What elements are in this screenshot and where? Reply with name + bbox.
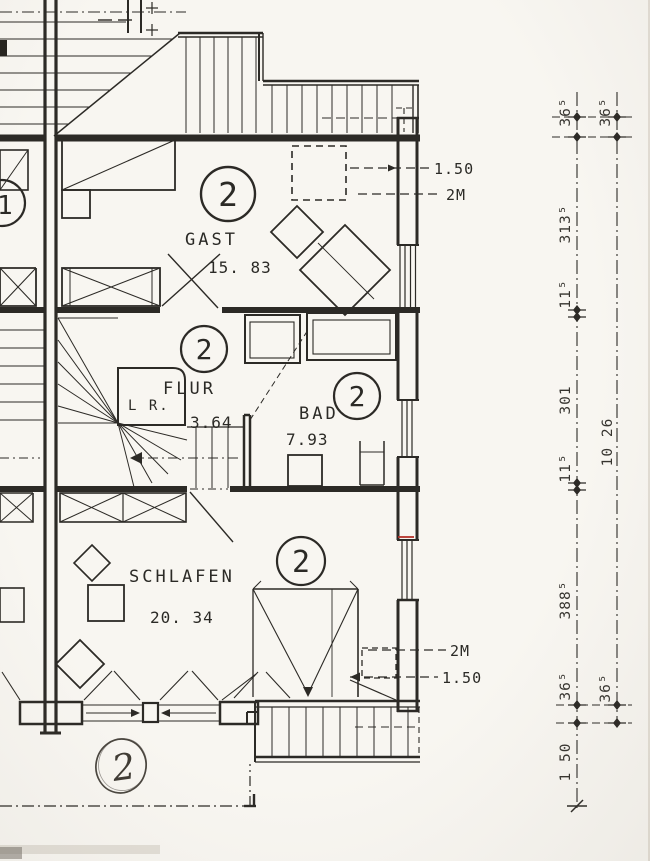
staircase: L R. xyxy=(58,318,243,488)
gast-diamond-small xyxy=(271,206,323,258)
void-label: L R. xyxy=(128,398,170,414)
roof-terrace-top xyxy=(0,0,419,136)
adjacent-unit-number: 1 xyxy=(0,191,13,221)
dim-right-1: 10 26 xyxy=(600,418,616,467)
flur-area-label: 3.64 xyxy=(190,413,233,432)
roof-valley-line xyxy=(54,33,180,136)
height-line-2m-top: 2M xyxy=(446,186,466,204)
schlafen-door-swing xyxy=(190,492,233,542)
bad-room-label: BAD xyxy=(299,404,339,424)
room-gast: 1.50 2M 2 GAST 15. 83 xyxy=(62,140,474,315)
dim-left-6: 36⁵ xyxy=(558,671,574,700)
schlafen-area-label: 20. 34 xyxy=(150,608,214,627)
gast-side-table xyxy=(62,190,90,218)
floorplan-drawing: 1 1. xyxy=(0,0,650,861)
bad-wc xyxy=(288,455,322,486)
gast-room-label: GAST xyxy=(185,230,238,250)
flur-room-label: FLUR xyxy=(163,379,216,399)
gast-number: 2 xyxy=(218,175,238,214)
room-bad: 2 BAD 7.93 xyxy=(245,313,396,486)
terrace-hatch-upper xyxy=(186,37,256,133)
stair-upper-flight xyxy=(58,318,118,423)
balcony-hatch xyxy=(272,707,408,757)
dim-left-0: 36⁵ xyxy=(558,97,574,126)
sketched-unit-number: 2 xyxy=(109,746,138,790)
gast-low-wardrobe xyxy=(62,268,160,306)
stair-winder-fan xyxy=(118,423,187,487)
schlafen-low-wardrobe xyxy=(60,493,186,522)
height-line-150-bottom: 1.50 xyxy=(442,669,482,687)
dim-left-2: 11⁵ xyxy=(558,279,574,308)
schlafen-room-label: SCHLAFEN xyxy=(129,567,235,587)
right-exterior-wall xyxy=(397,117,419,712)
window-opening-arrows xyxy=(84,671,256,700)
schlafen-number: 2 xyxy=(292,545,310,580)
bad-fixture xyxy=(360,441,384,485)
height-line-2m-bottom: 2M xyxy=(450,642,470,660)
dim-right-2: 36⁵ xyxy=(598,673,614,702)
roof-hatch-horizontal xyxy=(0,22,172,124)
schlafen-dashed-fixture xyxy=(362,648,396,678)
schlafen-diamond-small xyxy=(74,545,110,581)
adjacent-stair-treads xyxy=(0,330,44,420)
dim-right-0: 36⁵ xyxy=(598,97,614,126)
balcony xyxy=(255,701,420,762)
flur-number: 2 xyxy=(196,333,213,366)
dimension-chains: 36⁵ 313⁵ 11⁵ 301 11⁵ 388⁵ 36⁵ 1 50 36⁵ 1… xyxy=(552,92,632,812)
bad-number: 2 xyxy=(349,380,366,413)
dim-left-5: 388⁵ xyxy=(558,581,574,620)
schlafen-diamond-large xyxy=(56,640,104,688)
bad-area-label: 7.93 xyxy=(286,430,329,449)
schlafen-table xyxy=(88,585,124,621)
schlafen-bed xyxy=(253,581,358,697)
gast-area-label: 15. 83 xyxy=(208,258,272,277)
window-gast xyxy=(400,245,416,312)
dim-labels-left: 36⁵ 313⁵ 11⁵ 301 11⁵ 388⁵ 36⁵ 1 50 xyxy=(558,97,574,781)
window-schlafen xyxy=(402,540,412,600)
gast-dashed-fixture xyxy=(292,146,346,200)
height-line-150-top: 1.50 xyxy=(434,160,474,178)
sketched-unit-mark: 2 xyxy=(91,734,151,797)
dim-left-7: 1 50 xyxy=(558,743,574,782)
terrace-hatch-lower xyxy=(272,85,418,133)
scanned-floorplan-page: 1 1. xyxy=(0,0,650,861)
dim-labels-right: 36⁵ 10 26 36⁵ xyxy=(598,97,616,702)
gast-door-swing xyxy=(162,254,220,308)
survey-cross-marks xyxy=(146,2,158,36)
leader-arrowhead xyxy=(388,165,396,172)
dim-left-1: 313⁵ xyxy=(558,205,574,244)
dim-left-3: 301 xyxy=(558,385,574,414)
dim-left-4: 11⁵ xyxy=(558,453,574,482)
window-bad xyxy=(402,400,412,457)
